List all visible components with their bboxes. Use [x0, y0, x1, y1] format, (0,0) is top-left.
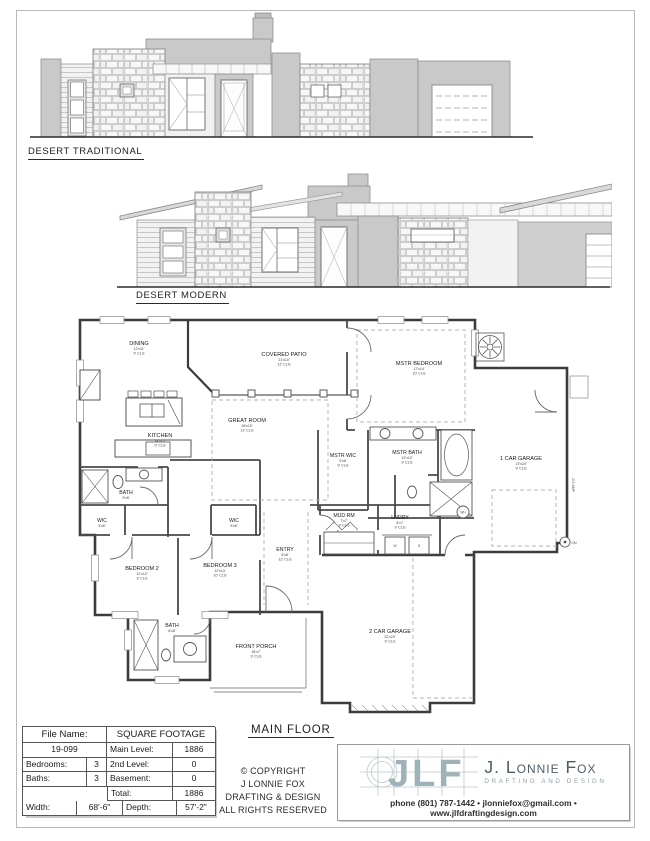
svg-text:9' CLG: 9' CLG	[133, 351, 144, 355]
copyright-block: © COPYRIGHT J LONNIE FOX DRAFTING & DESI…	[203, 765, 343, 817]
copyright-line-3: DRAFTING & DESIGN	[203, 791, 343, 804]
ceiling-fan-icon	[476, 333, 504, 361]
main-level-label: Main Level:	[107, 743, 173, 758]
mstr-bath-fixtures	[370, 427, 472, 516]
room-label-bedroom3: BEDROOM 3 12'x13' 10' CLG	[203, 563, 237, 577]
logo-row: JLF J. Lonnie Fox DRAFTING AND DESIGN	[338, 747, 629, 797]
jlf-monogram-icon: JLF	[360, 748, 478, 796]
room-label-2-car-garage: 2 CAR GARAGE 22'x23' 9' CLG	[369, 629, 411, 643]
copyright-line-4: ALL RIGHTS RESERVED	[203, 804, 343, 817]
room-label-covered-patio: COVERED PATIO 21'x10' 12' CLG	[261, 352, 307, 366]
svg-text:10' CLG: 10' CLG	[412, 371, 425, 375]
room-label-1-car-garage: 1 CAR GARAGE 13'x24' 9' CLG	[500, 456, 542, 470]
panel-note: 200 AMP	[571, 478, 575, 492]
svg-text:9' CLG: 9' CLG	[154, 443, 165, 447]
room-label-bedroom2: BEDROOM 2 12'x12' 9' CLG	[125, 566, 159, 580]
room-label-mstr-wic: MSTR WIC 9'x8' 9' CLG	[330, 453, 356, 467]
parapet-band	[153, 64, 271, 74]
garage-door	[432, 85, 492, 137]
depth-label: Depth:	[123, 801, 177, 816]
svg-text:10' CLG: 10' CLG	[213, 573, 226, 577]
room-label-hall-bath: BATH 9'x5'	[119, 490, 133, 500]
svg-text:9' CLG: 9' CLG	[394, 525, 405, 529]
patio-colonnade	[212, 390, 358, 397]
svg-text:5'x6': 5'x6'	[230, 524, 237, 528]
elevation-label-traditional: DESERT TRADITIONAL	[28, 146, 144, 160]
garage-window	[411, 229, 454, 242]
main-level-value: 1886	[173, 743, 216, 758]
gas-meter-label: GM	[571, 541, 576, 545]
logo-block: JLF J. Lonnie Fox DRAFTING AND DESIGN ph…	[337, 744, 630, 821]
logo-name-block: J. Lonnie Fox DRAFTING AND DESIGN	[484, 759, 606, 786]
kitchen-island	[126, 398, 182, 426]
room-label-mstr-bath: MSTR BATH 12'x10' 9' CLG	[392, 450, 422, 464]
svg-text:9' CLG: 9' CLG	[515, 466, 526, 470]
svg-text:9' CLG: 9' CLG	[136, 576, 147, 580]
svg-text:9'x5': 9'x5'	[122, 496, 129, 500]
room-label-wic-right: WIC 5'x6'	[229, 518, 239, 528]
canopy-band	[337, 203, 612, 216]
window-stack-left	[68, 80, 86, 136]
room-label-wic-left: WIC 5'x6'	[97, 518, 107, 528]
svg-text:9' CLG: 9' CLG	[338, 523, 349, 527]
info-table: File Name: SQUARE FOOTAGE 19-099 Main Le…	[22, 726, 215, 816]
plan-sheet: DESERT TRADITIONAL	[0, 0, 650, 841]
file-name-label: File Name:	[23, 727, 107, 743]
svg-text:9' CLG: 9' CLG	[250, 654, 261, 658]
front-door	[221, 80, 247, 137]
front-door	[321, 227, 347, 287]
toilet	[162, 649, 171, 661]
elevation-desert-modern	[112, 172, 612, 297]
svg-text:5'x6': 5'x6'	[98, 524, 105, 528]
stoop	[570, 376, 588, 398]
copyright-line-2: J LONNIE FOX	[203, 778, 343, 791]
svg-text:9' CLG: 9' CLG	[337, 463, 348, 467]
garage1-door-dashed	[492, 490, 556, 546]
garage-door-right	[586, 234, 612, 287]
company-tagline: DRAFTING AND DESIGN	[484, 778, 606, 785]
toilet	[113, 476, 123, 489]
file-name-value: 19-099	[23, 743, 107, 758]
company-name: J. Lonnie Fox	[484, 759, 606, 777]
svg-text:12' CLG: 12' CLG	[240, 428, 253, 432]
kitchen-fixtures	[80, 370, 191, 457]
tall-window-center	[169, 78, 205, 130]
room-label-mstr-bedroom: MSTR BEDROOM 17'x14' 10' CLG	[396, 361, 443, 375]
empty-cell	[23, 787, 107, 801]
svg-text:12' CLG: 12' CLG	[278, 557, 291, 561]
elevation2-drawing	[117, 174, 612, 287]
bedrooms-label: Bedrooms:	[23, 758, 87, 773]
floor-plan: DINING 12'x11' 9' CLG COVERED PATIO 21'x…	[60, 300, 645, 730]
second-level-label: 2nd Level:	[107, 758, 173, 773]
dryer-label: D	[418, 544, 421, 548]
water-heater-label: WH	[460, 511, 466, 515]
room-label-entry: ENTRY 8'x8' 12' CLG	[276, 547, 294, 561]
sqft-header: SQUARE FOOTAGE	[107, 727, 216, 743]
tall-window-center	[262, 228, 298, 272]
toilet	[408, 486, 417, 498]
elevation1-drawing	[30, 13, 533, 137]
washer-label: W	[393, 544, 397, 548]
elevation-desert-traditional	[28, 12, 598, 152]
chimney	[253, 18, 273, 42]
room-labels: DINING 12'x11' 9' CLG COVERED PATIO 21'x…	[97, 341, 577, 658]
baths-value: 3	[87, 772, 107, 787]
width-label: Width:	[23, 801, 77, 816]
room-label-front-porch: FRONT PORCH 16'x7' 9' CLG	[236, 644, 277, 658]
contact-line: phone (801) 787-1442 • jlonniefox@gmail.…	[338, 798, 629, 818]
width-value: 68'-6"	[77, 801, 123, 816]
svg-text:9' CLG: 9' CLG	[384, 639, 395, 643]
info-table-grid: File Name: SQUARE FOOTAGE 19-099 Main Le…	[22, 726, 215, 801]
svg-text:12' CLG: 12' CLG	[277, 362, 290, 366]
door-swings	[110, 328, 557, 634]
total-label: Total:	[107, 787, 173, 802]
floor-plan-title: MAIN FLOOR	[248, 724, 334, 738]
window-stack-left	[160, 228, 186, 276]
info-table-bottom-row: Width: 68'-6" Depth: 57'-2"	[22, 801, 215, 816]
baths-label: Baths:	[23, 772, 87, 787]
garage-sill-hatch	[352, 705, 428, 711]
copyright-line-1: © COPYRIGHT	[203, 765, 343, 778]
bedrooms-value: 3	[87, 758, 107, 773]
great-room-tray	[212, 400, 328, 500]
room-label-lndry: LNDRY 8'x7' 9' CLG	[391, 515, 409, 529]
svg-text:8'x8': 8'x8'	[168, 629, 175, 633]
basement-label: Basement:	[107, 772, 173, 787]
room-label-dining: DINING 12'x11' 9' CLG	[129, 341, 149, 355]
room-label-lower-bath: BATH 8'x8'	[165, 623, 179, 633]
mstr-tray	[357, 330, 465, 422]
jlf-monogram-text: JLF	[388, 753, 465, 795]
svg-text:9' CLG: 9' CLG	[401, 460, 412, 464]
room-label-great-room: GREAT ROOM 18'x19' 12' CLG	[228, 418, 266, 432]
